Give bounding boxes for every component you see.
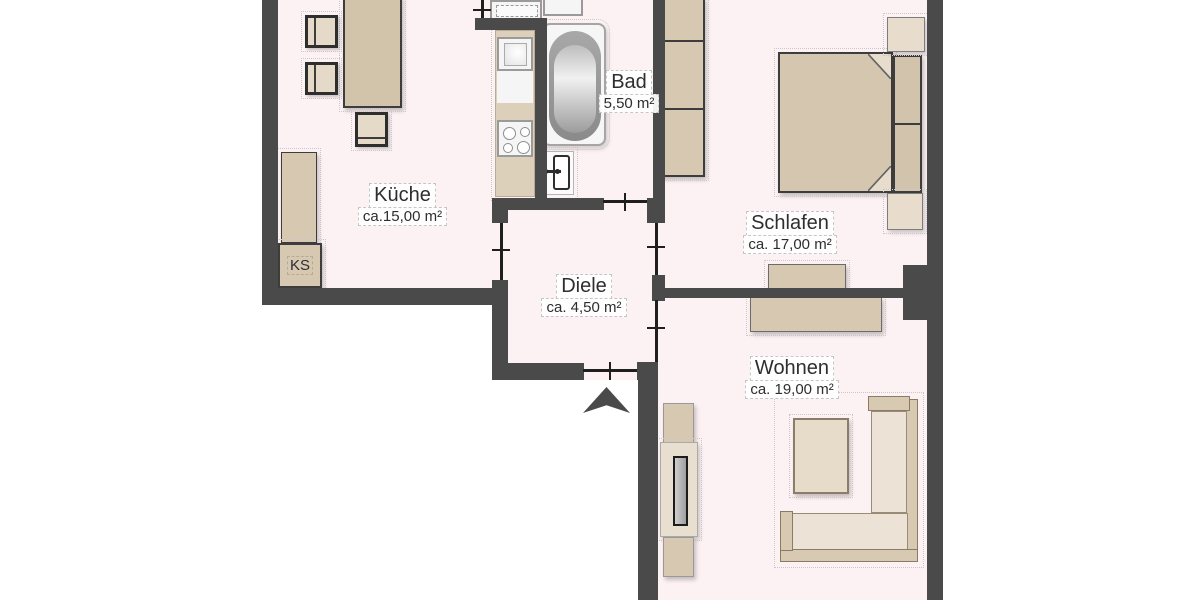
door-wohnen bbox=[655, 300, 658, 362]
wohnen-label: Wohnen ca. 19,00 m² bbox=[729, 356, 855, 399]
wall-top-stub bbox=[475, 18, 547, 30]
headboard bbox=[893, 55, 922, 193]
wall-diele-top bbox=[492, 198, 604, 210]
fridge-label: KS bbox=[287, 256, 313, 275]
door-top-tick bbox=[473, 9, 491, 11]
bath-basin bbox=[543, 0, 583, 16]
dining-table bbox=[343, 0, 402, 108]
door-bad-tick bbox=[624, 193, 626, 211]
floor-plan: KS bbox=[0, 0, 1200, 600]
entry-arrow-icon bbox=[583, 387, 630, 413]
tv-board-bottom bbox=[663, 537, 694, 577]
door-schlafen bbox=[655, 223, 658, 275]
tv-board bbox=[660, 442, 698, 537]
wardrobe bbox=[660, 0, 705, 177]
door-kueche-tick bbox=[492, 249, 510, 251]
room-area: ca. 19,00 m² bbox=[745, 380, 838, 399]
door-kueche bbox=[500, 223, 503, 280]
room-area: ca. 4,50 m² bbox=[541, 298, 626, 317]
tv-board-top bbox=[663, 403, 694, 443]
coffee-table bbox=[793, 418, 849, 494]
pillow bbox=[868, 166, 891, 191]
room-name: Wohnen bbox=[750, 356, 834, 381]
room-name: Schlafen bbox=[746, 211, 834, 236]
room-area: 5,50 m² bbox=[599, 94, 660, 113]
wall-counter-divider bbox=[535, 18, 547, 210]
chair bbox=[305, 15, 338, 48]
wall-diele-topright bbox=[647, 198, 665, 223]
nightstand bbox=[887, 17, 925, 52]
stove bbox=[497, 120, 533, 157]
diele-label: Diele ca. 4,50 m² bbox=[520, 274, 648, 317]
kitchen-counter bbox=[495, 30, 535, 197]
wall-kitchen-bottom bbox=[262, 288, 508, 305]
door-entry-tick bbox=[609, 362, 611, 380]
wall-diele-topleft bbox=[492, 198, 508, 223]
pillow bbox=[868, 54, 891, 79]
fridge-ks: KS bbox=[278, 243, 322, 288]
door-schlafen-tick bbox=[647, 246, 665, 248]
tv-screen bbox=[673, 456, 688, 526]
room-name: Bad bbox=[606, 70, 652, 95]
wall-schlafen-wohnen bbox=[655, 288, 905, 298]
wall-right bbox=[927, 0, 943, 600]
sideboard-schlafen bbox=[768, 264, 846, 289]
schlafen-label: Schlafen ca. 17,00 m² bbox=[727, 211, 853, 254]
kueche-label: Küche ca.15,00 m² bbox=[340, 183, 465, 226]
chair bbox=[355, 112, 388, 147]
room-area: ca.15,00 m² bbox=[358, 207, 447, 226]
wall-left bbox=[262, 0, 278, 305]
nightstand bbox=[887, 193, 923, 230]
door-wohnen-tick bbox=[647, 327, 665, 329]
counter-worktop bbox=[497, 71, 533, 103]
room-name: Diele bbox=[556, 274, 612, 299]
wall-diele-bottom bbox=[492, 363, 584, 380]
bad-label: Bad 5,50 m² bbox=[592, 70, 666, 113]
chair bbox=[305, 62, 338, 95]
bed bbox=[778, 52, 893, 193]
sideboard-wohnen bbox=[750, 297, 882, 332]
room-area: ca. 17,00 m² bbox=[743, 235, 836, 254]
wall-wohnen-left bbox=[638, 362, 658, 600]
room-name: Küche bbox=[369, 183, 436, 208]
kitchen-cabinet bbox=[281, 152, 317, 243]
kitchen-sink bbox=[497, 37, 533, 71]
washing-machine bbox=[490, 0, 542, 18]
